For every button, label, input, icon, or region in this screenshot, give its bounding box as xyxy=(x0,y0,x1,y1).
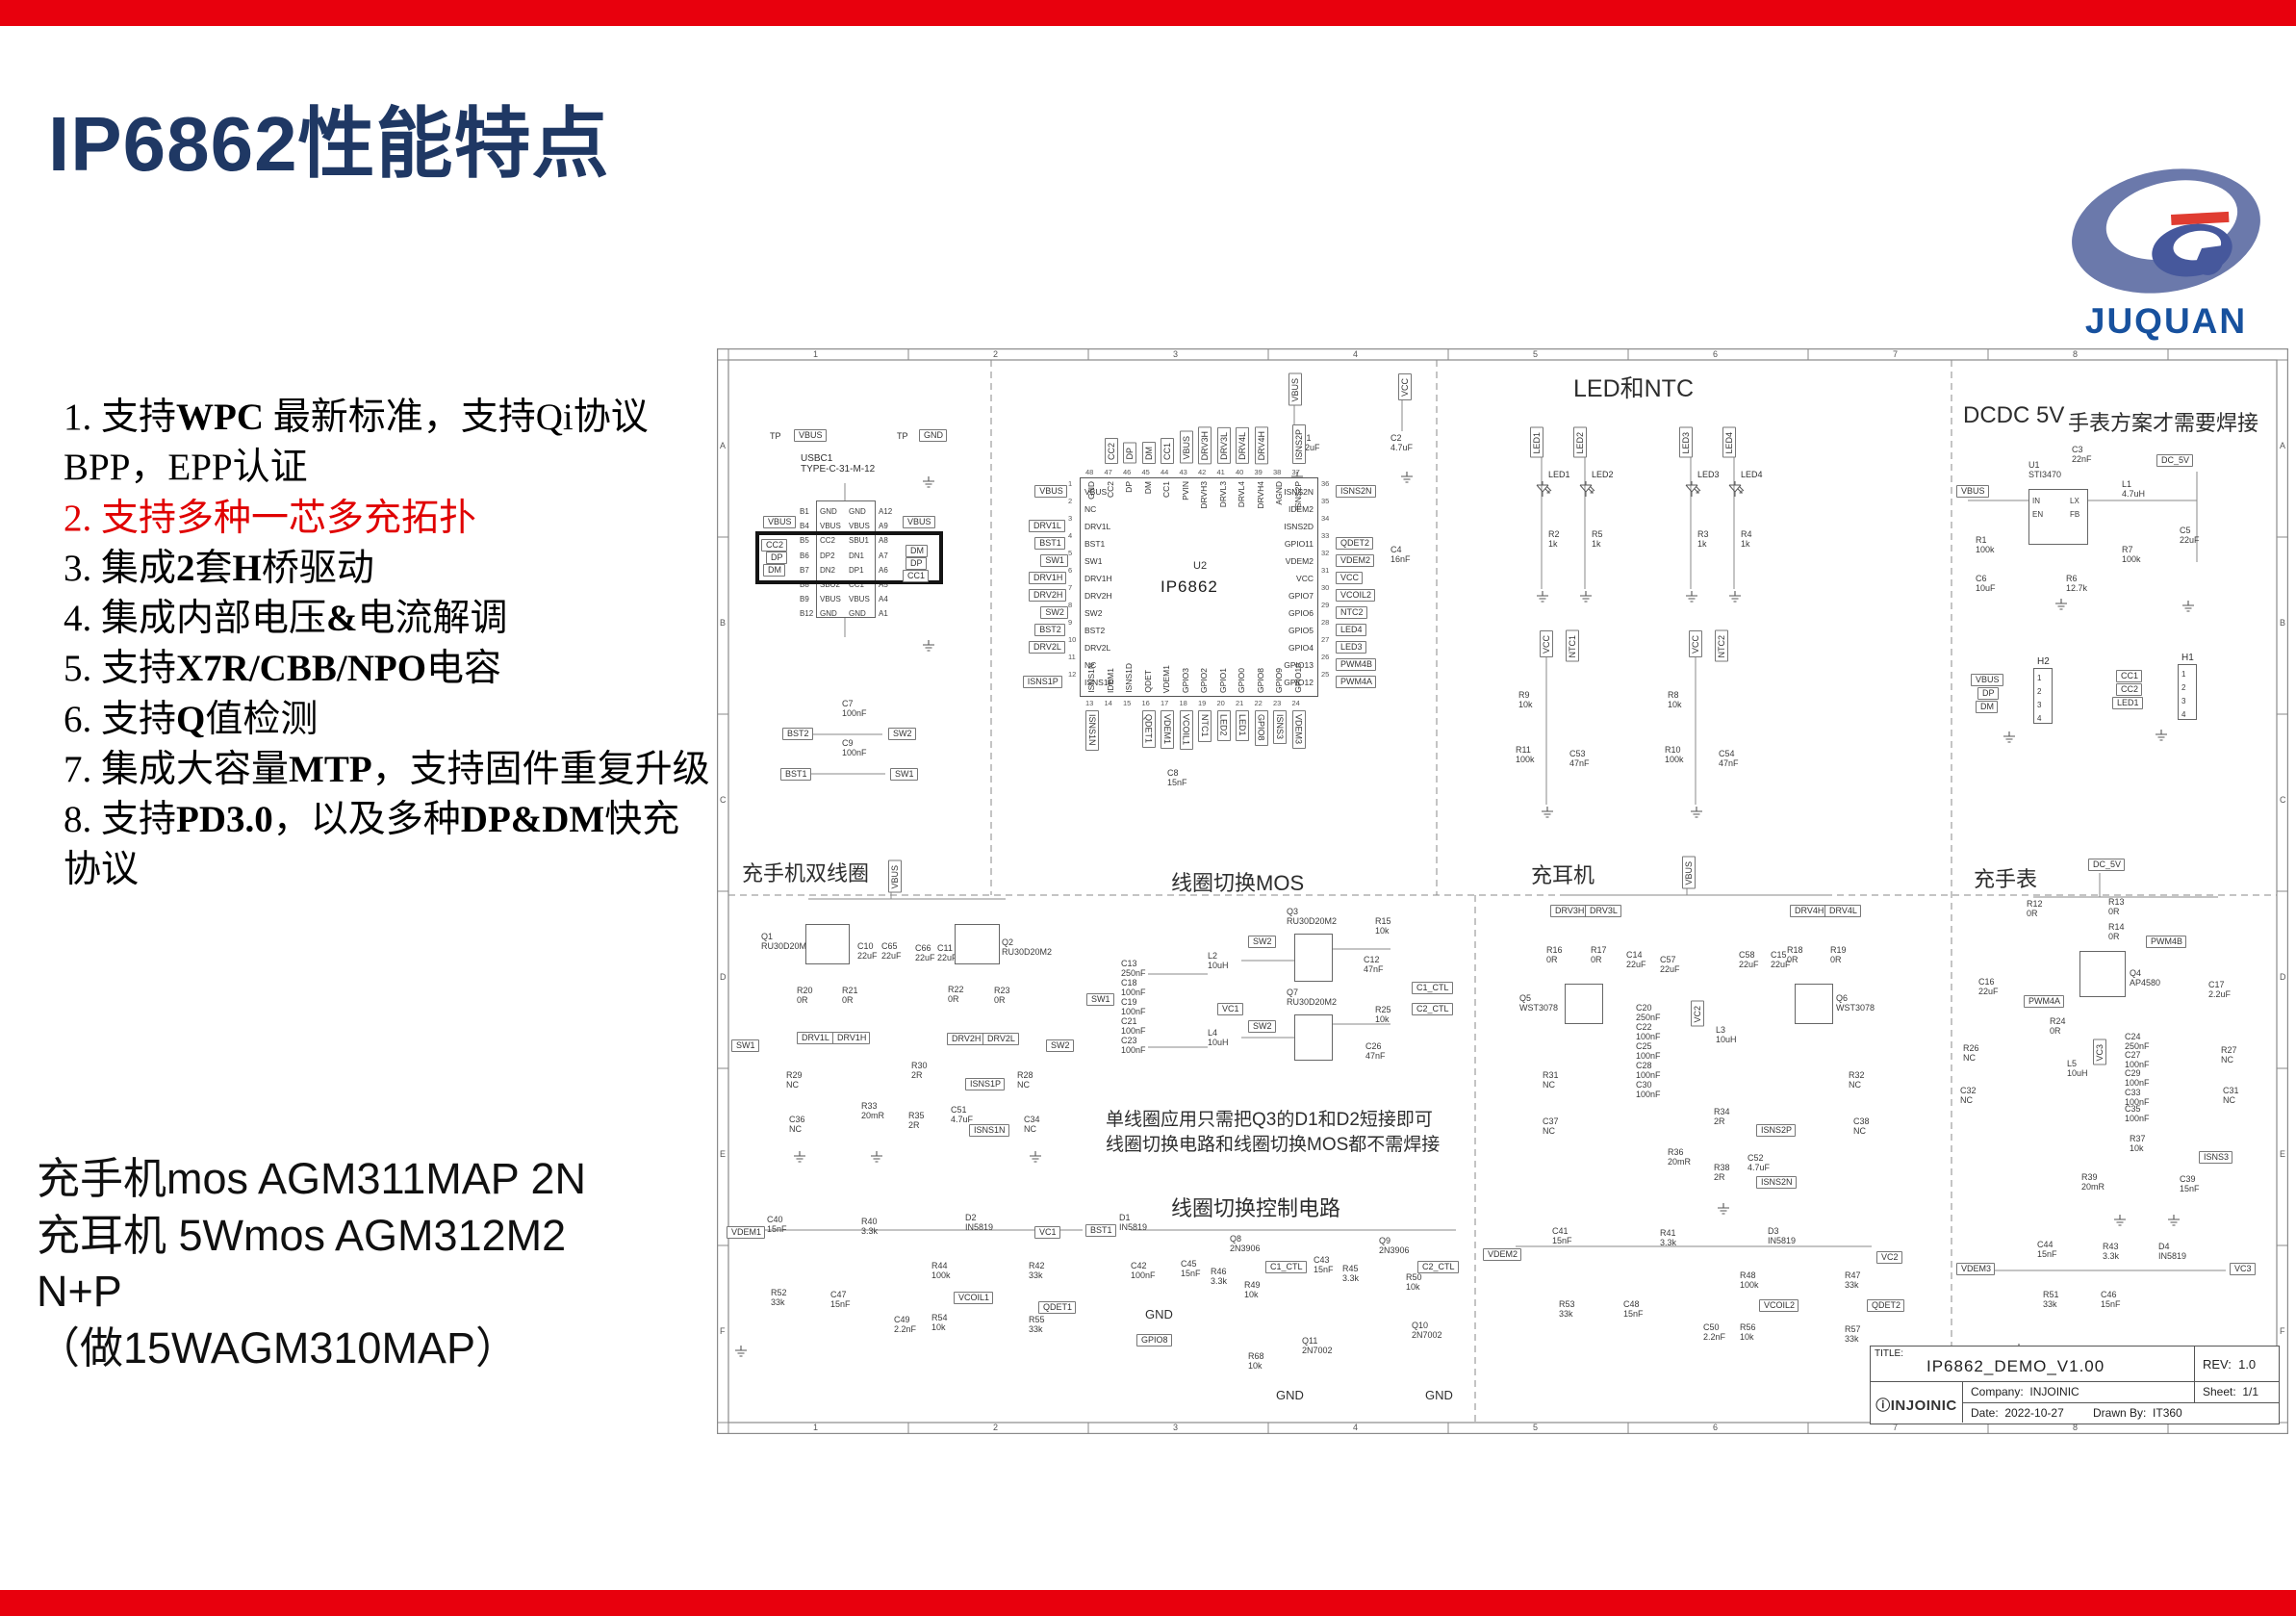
net-label-VBUS: VBUS xyxy=(1682,857,1696,889)
ruler-row-B: B xyxy=(720,618,726,628)
pin-number: 11 xyxy=(1068,653,1076,661)
component-ref: R26 xyxy=(1963,1043,1979,1053)
feature-segment: Q xyxy=(176,699,205,740)
net-label-NTC2: NTC2 xyxy=(1336,606,1367,619)
feature-segment: PD3.0 xyxy=(176,799,273,840)
net-label-ISNS1N: ISNS1N xyxy=(1085,710,1099,751)
pin-DRV1L: DRV1L xyxy=(1084,522,1110,531)
net-label-SW2: SW2 xyxy=(1248,936,1276,948)
feature-segment: H xyxy=(233,548,262,589)
ruler-col-8: 8 xyxy=(2073,349,2078,359)
usb-text-2: TP xyxy=(897,431,908,441)
component-value: 22uF xyxy=(1660,964,1680,974)
component-ref: D2 xyxy=(965,1213,993,1222)
drawn-by-cell: Drawn By: IT360 xyxy=(2093,1406,2182,1420)
component-ref: R31 xyxy=(1543,1070,1559,1080)
component-value: 10uH xyxy=(1208,961,1229,970)
net-label-VDEM2: VDEM2 xyxy=(1483,1248,1521,1261)
net-label-DRV2H: DRV2H xyxy=(947,1033,984,1045)
component-ref: R13 xyxy=(2108,897,2125,907)
net-label-ISNS1P: ISNS1P xyxy=(1023,676,1062,688)
ground-symbol xyxy=(1536,591,1549,608)
component-value: NC xyxy=(1960,1095,1977,1105)
component-ref: Q11 xyxy=(1302,1336,1333,1346)
feature-item-3: 3. 集成2套H桥驱动 xyxy=(64,544,710,594)
pin-ISNS2P: ISNS2P xyxy=(1293,481,1303,510)
component-value: 100nF xyxy=(2125,1078,2150,1088)
component-ref: C23 xyxy=(1121,1036,1146,1045)
component-value: 2R xyxy=(1714,1172,1730,1182)
feature-segment: ，以及多种 xyxy=(273,799,461,840)
component-value: 100k xyxy=(931,1270,951,1280)
component-R16: R160R xyxy=(1546,945,1563,964)
pin-QDET: QDET xyxy=(1143,670,1153,693)
component-value: 0R xyxy=(948,994,964,1004)
component-R18: R180R xyxy=(1787,945,1803,964)
pin-DRVH4: DRVH4 xyxy=(1256,481,1265,509)
component-value: 16nF xyxy=(1390,554,1411,564)
rev-cell: REV: 1.0 xyxy=(2194,1347,2279,1381)
component-ref: C34 xyxy=(1024,1115,1040,1124)
net-label-VC3: VC3 xyxy=(2093,1039,2106,1065)
feature-segment: 7. 集成大容量 xyxy=(64,749,289,790)
juquan-logo-text: JUQUAN xyxy=(2057,301,2275,342)
net-label-LED3: LED3 xyxy=(1336,641,1366,654)
ruler-col-3: 3 xyxy=(1173,349,1178,359)
component-ref: C13 xyxy=(1121,959,1146,968)
net-label-GND: GND xyxy=(919,429,947,442)
coil-dual-section-title: 充手机双线圈 xyxy=(742,857,869,887)
component-C45: C4515nF xyxy=(1181,1259,1201,1278)
component-value: 100nF xyxy=(1636,1051,1661,1061)
pin-number: 15 xyxy=(1123,699,1131,707)
component-ref: Q8 xyxy=(1230,1234,1261,1244)
component-C26: C2647nF xyxy=(1365,1041,1386,1061)
net-label-DC_5V: DC_5V xyxy=(2156,454,2193,467)
led-symbol xyxy=(1727,481,1745,505)
component-ref: U1 xyxy=(2028,460,2061,470)
component-ref: R68 xyxy=(1248,1351,1264,1361)
net-label-ISNS2N: ISNS2N xyxy=(1336,485,1376,498)
component-value: 33k xyxy=(1029,1270,1045,1280)
coil-ctl-text-8: GND xyxy=(1145,1307,1173,1321)
component-L5: L510uH xyxy=(2067,1059,2088,1078)
pin-number: 3 xyxy=(1068,514,1072,523)
component-ref: C53 xyxy=(1569,749,1590,758)
component-ref: R5 xyxy=(1592,529,1603,539)
watch-part-body xyxy=(2079,951,2126,997)
dcdc-part-body xyxy=(2033,668,2053,724)
coil-ctl-text-12: GND xyxy=(1276,1388,1304,1402)
ruler-row-D: D xyxy=(2280,972,2286,982)
net-label-DP: DP xyxy=(1977,687,1999,700)
component-ref: R28 xyxy=(1017,1070,1033,1080)
pin-number: 17 xyxy=(1161,699,1168,707)
net-label-DRV3L: DRV3L xyxy=(1585,905,1621,917)
ruler-col-3: 3 xyxy=(1173,1423,1178,1432)
net-label-VCOIL1: VCOIL1 xyxy=(1180,710,1193,750)
component-ref: R35 xyxy=(908,1111,925,1120)
pin-ISNS2D: ISNS2D xyxy=(1284,522,1314,531)
company-label: Company: xyxy=(1971,1385,2024,1398)
coil-mos-section-title: 线圈切换MOS xyxy=(1171,866,1304,897)
ruler-col-5: 5 xyxy=(1533,349,1538,359)
component-D3: D3IN5819 xyxy=(1768,1226,1796,1245)
component-ref: R40 xyxy=(861,1217,878,1226)
ground-symbol xyxy=(734,1346,748,1363)
pin-number: 44 xyxy=(1161,468,1168,476)
schematic-title-block: TITLE: IP6862_DEMO_V1.00 REV: 1.0 ⓘINJOI… xyxy=(1870,1346,2280,1424)
net-label-DRV4L: DRV4L xyxy=(1824,905,1861,917)
ground-symbol xyxy=(1400,472,1414,489)
component-R9: R910k xyxy=(1518,690,1533,709)
net-label-VCOIL2: VCOIL2 xyxy=(1336,589,1375,602)
component-value: 100nF xyxy=(842,748,867,757)
component-value: 22uF xyxy=(881,951,902,961)
pin-GPIO2: GPIO2 xyxy=(1199,668,1209,693)
component-value: 100k xyxy=(1976,545,1995,554)
component-ref: R4 xyxy=(1741,529,1752,539)
ruler-col-4: 4 xyxy=(1353,349,1358,359)
ground-symbol xyxy=(1541,807,1554,824)
component-ref: R44 xyxy=(931,1261,951,1270)
net-label-DRV1L: DRV1L xyxy=(797,1032,833,1044)
component-ref: R55 xyxy=(1029,1315,1045,1324)
component-R5: R51k xyxy=(1592,529,1603,549)
pin-GPIO11: GPIO11 xyxy=(1285,539,1314,549)
component-C49: C492.2nF xyxy=(894,1315,916,1334)
component-U1: U1STI3470 xyxy=(2028,460,2061,479)
component-ref: Q1 xyxy=(761,932,811,941)
component-R43: R433.3k xyxy=(2103,1242,2119,1261)
pin-AGND: AGND xyxy=(1274,481,1284,505)
feature-segment: 1. 支持 xyxy=(64,397,176,438)
component-R28: R28NC xyxy=(1017,1070,1033,1090)
net-label-VCOIL2: VCOIL2 xyxy=(1759,1299,1799,1312)
net-label-PWM4B: PWM4B xyxy=(1336,658,1376,671)
feature-item-7: 7. 集成大容量MTP，支持固件重复升级 xyxy=(64,745,710,795)
pin-number: 18 xyxy=(1180,699,1187,707)
feature-segment: 6. 支持 xyxy=(64,699,176,740)
pin-DRVL4: DRVL4 xyxy=(1237,481,1246,507)
component-value: 10uH xyxy=(1208,1038,1229,1047)
component-Q7: Q7RU30D20M2 xyxy=(1287,988,1337,1007)
pin-GPIO3: GPIO3 xyxy=(1181,668,1190,693)
component-value: 0R xyxy=(1787,955,1803,964)
component-value: 10k xyxy=(1406,1282,1422,1292)
component-ref: R22 xyxy=(948,985,964,994)
component-ref: L3 xyxy=(1716,1025,1737,1035)
component-R51: R5133k xyxy=(2043,1290,2059,1309)
component-value: 100nF xyxy=(1121,1045,1146,1055)
component-Q11: Q112N7002 xyxy=(1302,1336,1333,1355)
net-label-ISNS2P: ISNS2P xyxy=(1756,1124,1796,1137)
ground-symbol xyxy=(1579,591,1593,608)
net-label-NTC1: NTC1 xyxy=(1198,710,1212,742)
pin-NC: NC xyxy=(1084,504,1096,514)
ground-symbol xyxy=(1029,1151,1042,1168)
component-value: 15nF xyxy=(2037,1249,2057,1259)
component-value: NC xyxy=(1963,1053,1979,1063)
component-ref: R10 xyxy=(1665,745,1684,755)
component-R42: R4233k xyxy=(1029,1261,1045,1280)
pin-number: 23 xyxy=(1273,699,1281,707)
component-value: 100nF xyxy=(1131,1270,1156,1280)
pin-number: 45 xyxy=(1142,468,1150,476)
net-label-SW2: SW2 xyxy=(1046,1039,1074,1052)
component-C48: C4815nF xyxy=(1623,1299,1644,1319)
pin-number: 40 xyxy=(1236,468,1243,476)
feature-segment: MTP xyxy=(289,749,372,790)
dcdc-text-17: H2 xyxy=(2037,656,2050,667)
component-R7: R7100k xyxy=(2122,545,2141,564)
component-C16: C1622uF xyxy=(1978,977,1999,996)
ruler-col-6: 6 xyxy=(1713,349,1718,359)
component-value: 33k xyxy=(2043,1299,2059,1309)
component-L2: L210uH xyxy=(1208,951,1229,970)
component-R37: R3710k xyxy=(2130,1134,2146,1153)
ruler-row-C: C xyxy=(720,795,727,805)
component-C25: C25100nF xyxy=(1636,1041,1661,1061)
net-label-BST2: BST2 xyxy=(782,728,813,740)
component-value: 15nF xyxy=(1552,1236,1572,1245)
ruler-row-C: C xyxy=(2280,795,2286,805)
component-L1: L14.7uH xyxy=(2122,479,2145,499)
component-ref: Q3 xyxy=(1287,907,1337,916)
component-value: 15nF xyxy=(2101,1299,2121,1309)
ruler-col-7: 7 xyxy=(1893,349,1898,359)
pin-number: 39 xyxy=(1255,468,1263,476)
component-value: 0R xyxy=(2108,907,2125,916)
component-R68: R6810k xyxy=(1248,1351,1264,1371)
net-label-BST2: BST2 xyxy=(1034,624,1065,636)
component-ref: R23 xyxy=(994,986,1010,995)
component-ref: R42 xyxy=(1029,1261,1045,1270)
component-value: 2.2nF xyxy=(1703,1332,1725,1342)
component-ref: C44 xyxy=(2037,1240,2057,1249)
feature-segment: 桥驱动 xyxy=(262,548,374,589)
net-label-PWM4A: PWM4A xyxy=(2024,995,2064,1008)
ground-symbol xyxy=(2181,601,2195,618)
pin-DP: DP xyxy=(1124,481,1134,493)
ruler-col-1: 1 xyxy=(813,1423,818,1432)
net-label-DRV3L: DRV3L xyxy=(1217,427,1231,464)
component-ref: Q2 xyxy=(1002,937,1052,947)
pin-number: 36 xyxy=(1321,479,1329,488)
coil-ctl-section-title: 线圈切换控制电路 xyxy=(1171,1192,1340,1222)
component-C28: C28100nF xyxy=(1636,1061,1661,1080)
rev-label: REV: xyxy=(2203,1357,2232,1372)
net-label-VCC: VCC xyxy=(1336,572,1363,584)
component-C4: C416nF xyxy=(1390,545,1411,564)
component-Q8: Q82N3906 xyxy=(1230,1234,1261,1253)
component-C3: C322nF xyxy=(2072,445,2092,464)
component-C21: C21100nF xyxy=(1121,1016,1146,1036)
bottom-red-bar xyxy=(0,1590,2296,1616)
ruler-row-A: A xyxy=(2280,441,2285,450)
net-label-VBUS: VBUS xyxy=(794,429,827,442)
component-value: WST3078 xyxy=(1836,1003,1875,1013)
component-C66: C6622uF xyxy=(915,943,935,962)
net-label-DRV4L: DRV4L xyxy=(1236,427,1249,464)
feature-item-8: 8. 支持PD3.0，以及多种DP&DM快充协议 xyxy=(64,795,710,896)
date-value: 2022-10-27 xyxy=(2004,1406,2063,1420)
component-value: 22uF xyxy=(1626,960,1646,969)
headphone-part-body xyxy=(1565,984,1603,1024)
component-ref: R53 xyxy=(1559,1299,1575,1309)
feature-item-6: 6. 支持Q值检测 xyxy=(64,695,710,745)
component-ref: Q4 xyxy=(2130,968,2160,978)
component-ref: C24 xyxy=(2125,1032,2150,1041)
feature-segment: 5. 支持 xyxy=(64,648,176,689)
component-ref: C4 xyxy=(1390,545,1411,554)
component-C27: C27100nF xyxy=(2125,1050,2150,1069)
net-label-DRV3H: DRV3H xyxy=(1198,426,1212,464)
sheet-cell: Sheet: 1/1 xyxy=(2194,1382,2279,1402)
net-label-NTC1: NTC1 xyxy=(1566,630,1579,662)
component-R54: R5410k xyxy=(931,1313,948,1332)
component-ref: C51 xyxy=(951,1105,973,1115)
pin-IDEM1: IDEM1 xyxy=(1106,668,1115,693)
component-value: 100nF xyxy=(842,708,867,718)
component-Q4: Q4AP4580 xyxy=(2130,968,2160,988)
page-title: IP6862性能特点 xyxy=(48,100,610,189)
component-R20: R200R xyxy=(797,986,813,1005)
pin-number: 21 xyxy=(1236,699,1243,707)
component-C41: C4115nF xyxy=(1552,1226,1572,1245)
net-label-GPIO8: GPIO8 xyxy=(1255,710,1268,746)
rev-value: 1.0 xyxy=(2238,1357,2256,1372)
pin-GPIO9: GPIO9 xyxy=(1274,668,1284,693)
component-value: 22uF xyxy=(857,951,878,961)
component-ref: C58 xyxy=(1739,950,1759,960)
feature-segment: & xyxy=(326,598,358,639)
pin-number: 46 xyxy=(1123,468,1131,476)
net-label-LED2: LED2 xyxy=(1573,427,1587,458)
pin-SW2: SW2 xyxy=(1084,608,1102,618)
ruler-row-E: E xyxy=(2280,1149,2285,1159)
dcdc-text-24: H1 xyxy=(2181,653,2194,663)
component-C8: C815nF xyxy=(1167,768,1187,787)
component-ref: R18 xyxy=(1787,945,1803,955)
net-label-VC1: VC1 xyxy=(1034,1226,1060,1239)
pin-number: 34 xyxy=(1321,514,1329,523)
component-value: 100nF xyxy=(2125,1114,2150,1123)
component-ref: C5 xyxy=(2180,526,2200,535)
coil-mos-part-body xyxy=(1294,934,1333,982)
component-C23: C23100nF xyxy=(1121,1036,1146,1055)
component-R55: R5533k xyxy=(1029,1315,1045,1334)
component-ref: C25 xyxy=(1636,1041,1661,1051)
component-ref: C29 xyxy=(2125,1068,2150,1078)
component-value: 100k xyxy=(2122,554,2141,564)
component-R35: R352R xyxy=(908,1111,925,1130)
net-label-DRV2H: DRV2H xyxy=(1029,589,1066,602)
component-value: 10uH xyxy=(2067,1068,2088,1078)
net-label-DC_5V: DC_5V xyxy=(2088,859,2125,871)
component-ref: C66 xyxy=(915,943,935,953)
component-ref: R38 xyxy=(1714,1163,1730,1172)
component-value: NC xyxy=(1543,1080,1559,1090)
component-ref: C10 xyxy=(857,941,878,951)
component-ref: R48 xyxy=(1740,1270,1759,1280)
component-ref: R6 xyxy=(2066,574,2087,583)
component-C42: C42100nF xyxy=(1131,1261,1156,1280)
component-value: 10uF xyxy=(1976,583,1996,593)
component-value: 2.2uF xyxy=(2208,989,2231,999)
component-value: NC xyxy=(786,1080,803,1090)
usb-text-0: TP xyxy=(770,431,781,441)
component-value: IN5819 xyxy=(1119,1222,1147,1232)
component-C18: C18100nF xyxy=(1121,978,1146,997)
component-ref: L2 xyxy=(1208,951,1229,961)
pin-DRV2H: DRV2H xyxy=(1084,591,1112,601)
headphone-part-body xyxy=(1795,984,1833,1024)
net-label-C2_CTL: C2_CTL xyxy=(1417,1261,1459,1273)
component-value: 2R xyxy=(1714,1116,1730,1126)
feature-list: 1. 支持WPC 最新标准，支持Qi协议BPP，EPP认证2. 支持多种一芯多充… xyxy=(64,393,710,896)
ground-symbol xyxy=(922,640,935,657)
schematic-sheet: TPVBUSTPGNDUSBC1TYPE-C-31-M-12B1 B4 B5 B… xyxy=(717,348,2288,1434)
component-value: 22uF xyxy=(2180,535,2200,545)
component-value: 15nF xyxy=(1314,1265,1334,1274)
component-ref: C9 xyxy=(842,738,867,748)
component-value: WST3078 xyxy=(1519,1003,1558,1013)
net-label-DP: DP xyxy=(906,557,927,570)
ground-symbol xyxy=(2113,1215,2127,1232)
pin-number: 25 xyxy=(1321,670,1329,679)
ruler-col-6: 6 xyxy=(1713,1423,1718,1432)
juquan-logo: JUQUAN xyxy=(2057,164,2275,342)
component-C40: C4015nF xyxy=(767,1215,787,1234)
component-ref: C22 xyxy=(1636,1022,1661,1032)
component-value: 0R xyxy=(2108,932,2125,941)
component-value: NC xyxy=(1849,1080,1865,1090)
component-value: 33k xyxy=(1029,1324,1045,1334)
net-label-ISNS3: ISNS3 xyxy=(2199,1151,2232,1164)
component-value: 100nF xyxy=(1636,1090,1661,1099)
component-Q5: Q5WST3078 xyxy=(1519,993,1558,1013)
net-label-DM: DM xyxy=(906,545,928,557)
component-R39: R3920mR xyxy=(2081,1172,2105,1192)
net-label-DRV1H: DRV1H xyxy=(832,1032,870,1044)
pin-number: 20 xyxy=(1217,699,1225,707)
component-C65: C6522uF xyxy=(881,941,902,961)
feature-segment: ，支持固件重复升级 xyxy=(372,749,710,790)
component-value: 47nF xyxy=(1364,964,1384,974)
component-ref: C47 xyxy=(830,1290,851,1299)
component-ref: R46 xyxy=(1211,1267,1227,1276)
ruler-row-A: A xyxy=(720,441,726,450)
component-C36: C36NC xyxy=(789,1115,805,1134)
component-C29: C29100nF xyxy=(2125,1068,2150,1088)
net-label-ISNS1P: ISNS1P xyxy=(965,1078,1005,1090)
feature-segment: 2 xyxy=(176,548,195,589)
component-value: 1k xyxy=(1741,539,1752,549)
net-label-SW1: SW1 xyxy=(731,1039,759,1052)
pin-CC1: CC1 xyxy=(1161,481,1171,498)
component-R50: R5010k xyxy=(1406,1272,1422,1292)
sheet-label: Sheet: xyxy=(2203,1385,2236,1398)
pin-number: 31 xyxy=(1321,566,1329,575)
component-R38: R382R xyxy=(1714,1163,1730,1182)
component-R14: R140R xyxy=(2108,922,2125,941)
component-Q6: Q6WST3078 xyxy=(1836,993,1875,1013)
component-ref: C52 xyxy=(1748,1153,1770,1163)
component-value: 250nF xyxy=(1121,968,1146,978)
component-ref: L4 xyxy=(1208,1028,1229,1038)
pin-number: 14 xyxy=(1105,699,1112,707)
